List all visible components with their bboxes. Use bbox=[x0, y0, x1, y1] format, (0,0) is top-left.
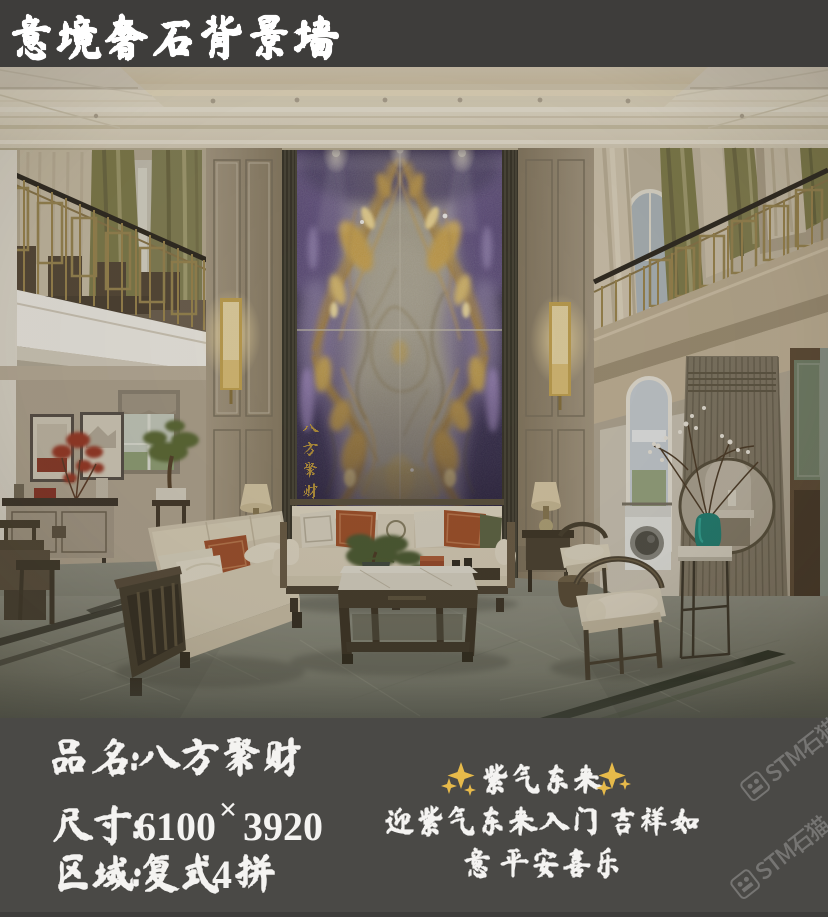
svg-text:3920: 3920 bbox=[243, 804, 323, 849]
svg-text:6100: 6100 bbox=[136, 804, 216, 849]
svg-text:4: 4 bbox=[212, 852, 232, 897]
svg-text:×: × bbox=[219, 791, 237, 827]
